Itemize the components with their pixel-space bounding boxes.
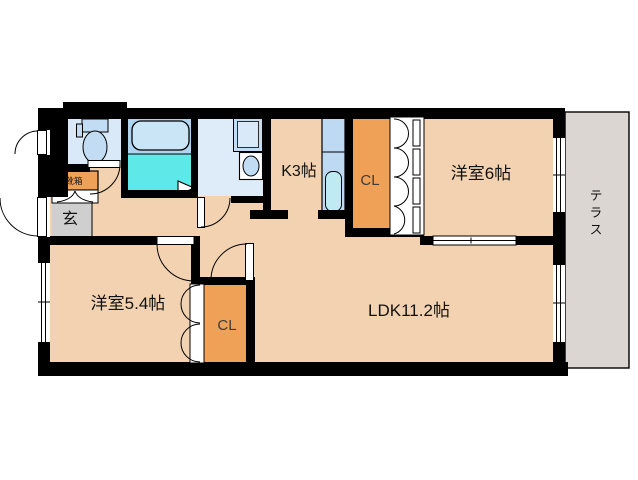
wall-bath-bottom: [121, 190, 198, 198]
toilet-flush-handle: [77, 124, 83, 137]
terrace-label: テラス: [588, 189, 603, 240]
wall-kitchen-bottom-right: [318, 210, 347, 219]
floorplan-drawing: K3帖 CL CL 洋室6帖 洋室5.4帖 LDK11.2帖 玄 靴箱 テラス: [0, 0, 638, 480]
closet-upper-door-panel: [413, 207, 420, 233]
storage-door: [38, 131, 47, 155]
room54-label: 洋室5.4帖: [91, 294, 166, 313]
wall-room54-top: [47, 236, 157, 245]
washbasin-bowl: [243, 156, 259, 176]
washroom-door: [198, 198, 205, 228]
closet-upper-doors: [390, 117, 424, 235]
terrace-area: [565, 112, 629, 368]
wall-washroom-kitchen: [263, 108, 271, 216]
entrance-door-arc: [0, 198, 38, 236]
wall-closet-lower-right: [246, 277, 255, 367]
bathtub: [132, 121, 189, 150]
kitchen-label: K3帖: [281, 162, 317, 180]
toilet-tank: [82, 119, 108, 132]
room6-label: 洋室6帖: [451, 164, 511, 183]
wall-kitchen-closet: [345, 108, 353, 237]
washing-machine-inner: [238, 122, 259, 148]
wall-kitchen-bottom-left: [250, 210, 288, 219]
closet-upper-door-panel: [413, 178, 420, 204]
entrance-label: 玄: [62, 210, 78, 228]
closet-lower-label: CL: [217, 317, 236, 334]
closet-upper-label: CL: [360, 172, 379, 189]
wall-washroom-stub: [231, 196, 263, 203]
storage-door-arc: [15, 131, 38, 154]
closet-upper-door-panel: [413, 149, 420, 175]
toilet-bowl: [83, 131, 107, 163]
wall-bath-washroom: [191, 108, 198, 198]
shoebox-label: 靴箱: [65, 176, 83, 186]
room54-door: [157, 237, 194, 245]
ldk-label: LDK11.2帖: [368, 301, 450, 320]
ldk-door: [246, 244, 254, 281]
wall-toilet-stub: [68, 164, 90, 172]
entrance-door: [38, 198, 47, 237]
wall-toilet-bath: [121, 108, 128, 198]
closet-upper-door-panel: [413, 120, 420, 146]
wall-bottom: [38, 362, 568, 376]
toilet-door: [88, 161, 120, 168]
wall-top-step: [63, 102, 127, 112]
floorplan-canvas: K3帖 CL CL 洋室6帖 洋室5.4帖 LDK11.2帖 玄 靴箱 テラス: [0, 0, 638, 480]
closet-lower-door-strip: [190, 284, 204, 363]
kitchen-counter-group: [322, 117, 345, 215]
kitchen-sink: [326, 172, 342, 212]
